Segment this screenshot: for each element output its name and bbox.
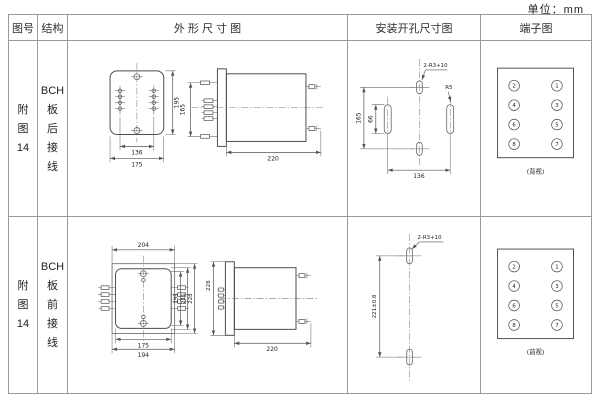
mounting-drawing-rear-wiring: 165 66 136 2-R3+10 R5 <box>348 41 480 216</box>
terminal-circles: 2 4 6 8 1 3 5 7 <box>508 80 562 149</box>
dim-label: 194 <box>138 352 150 359</box>
col-header-outline: 外 形 尺 寸 图 <box>68 15 348 41</box>
terminal-number: 4 <box>512 103 516 109</box>
structure-line: 板 <box>47 280 58 292</box>
dim-label: 220 <box>266 346 278 353</box>
structure-line: 板 <box>47 104 58 116</box>
terminal-number: 6 <box>512 303 516 309</box>
structure-line: 前 <box>47 299 58 311</box>
col-header-structure: 结构 <box>38 15 68 41</box>
row1-mounting-cell: 165 66 136 2-R3+10 R5 <box>348 41 481 217</box>
structure-line: 线 <box>47 161 58 173</box>
dim-label: 228 <box>188 292 194 303</box>
structure-line: 接 <box>47 318 58 330</box>
terminal-diagram-front-view: 2 4 6 8 1 3 5 7 (前视) <box>482 218 591 393</box>
figure-no-line: 14 <box>17 142 29 154</box>
row1-terminal-cell: 2 4 6 8 1 3 5 7 (背视) <box>481 41 591 217</box>
dim-label: 221±0.8 <box>372 294 378 318</box>
hole-spec-label: 2-R3+10 <box>417 235 442 241</box>
terminal-number: 7 <box>555 322 558 328</box>
dim-label: 136 <box>413 173 425 180</box>
col-header-mounting: 安装开孔尺寸图 <box>348 15 481 41</box>
outline-drawing-rear-wiring: 136 175 195 165 <box>68 41 347 216</box>
dim-label: 204 <box>138 241 150 248</box>
row2-mounting-cell: 2-R3+10 221±0.8 <box>348 217 481 393</box>
terminal-column-left <box>115 86 125 115</box>
side-view: 228 220 <box>206 261 317 352</box>
terminal-number: 6 <box>512 123 516 129</box>
dim-label: 220 <box>267 155 279 162</box>
terminal-span-dim: 165 <box>180 83 198 137</box>
dim-label: 195 <box>174 293 180 303</box>
dim-label: 136 <box>131 149 143 156</box>
hole-spec-label: 2-R3+10 <box>423 63 448 69</box>
row1-outline-cell: 136 175 195 165 <box>68 41 348 217</box>
row2-structure: BCH 板 前 接 线 <box>38 217 68 393</box>
structure-line: BCH <box>41 261 64 273</box>
figure-no-line: 14 <box>17 318 29 330</box>
terminal-screws-left <box>98 285 115 309</box>
view-caption: (前视) <box>526 347 544 356</box>
terminal-number: 5 <box>555 123 558 129</box>
terminal-number: 1 <box>555 264 558 270</box>
row2-figure-no: 附 图 14 <box>9 217 38 393</box>
dim-label: 175 <box>131 161 143 168</box>
rear-terminal-studs <box>198 81 218 138</box>
front-view: 136 175 195 <box>110 63 181 168</box>
figure-no-line: 图 <box>18 299 29 311</box>
dim-label: 165 <box>180 104 187 116</box>
terminal-number: 8 <box>512 322 516 328</box>
terminal-number: 8 <box>512 142 516 148</box>
dim-label: 228 <box>206 279 212 290</box>
terminal-number: 7 <box>555 142 558 148</box>
terminal-number: 5 <box>555 303 558 309</box>
view-caption: (背视) <box>526 166 544 175</box>
structure-line: BCH <box>41 85 64 97</box>
dim-label: 211 <box>181 293 187 303</box>
dim-label: 66 <box>367 115 374 123</box>
outline-drawing-front-wiring: 204 195 211 228 175 194 <box>68 218 347 393</box>
side-view: 220 <box>192 69 325 162</box>
terminal-column-right <box>149 86 159 115</box>
dim-label: 175 <box>138 342 150 349</box>
mounting-drawing-front-wiring: 2-R3+10 221±0.8 <box>348 218 480 393</box>
structure-line: 线 <box>47 337 58 349</box>
front-view: 204 195 211 228 175 194 <box>98 241 197 358</box>
terminal-circles: 2 4 6 8 1 3 5 7 <box>508 261 562 330</box>
terminal-number: 3 <box>555 103 558 109</box>
dimension-sheet-table: 图号 结构 外 形 尺 寸 图 安装开孔尺寸图 端子图 附 图 14 BCH 板… <box>8 14 592 394</box>
structure-line: 后 <box>47 123 58 135</box>
radius-label: R5 <box>445 85 452 91</box>
figure-no-line: 附 <box>18 280 29 292</box>
col-header-terminal: 端子图 <box>481 15 591 41</box>
row2-outline-cell: 204 195 211 228 175 194 <box>68 217 348 393</box>
figure-no-line: 图 <box>18 123 29 135</box>
mounting-slots <box>384 97 453 142</box>
structure-line: 接 <box>47 142 58 154</box>
terminal-number: 2 <box>512 264 515 270</box>
terminal-diagram-rear-view: 2 4 6 8 1 3 5 7 (背视) <box>482 41 591 216</box>
terminal-number: 1 <box>555 84 558 90</box>
terminal-number: 2 <box>512 84 515 90</box>
dim-label: 165 <box>355 112 362 124</box>
row2-terminal-cell: 2 4 6 8 1 3 5 7 (前视) <box>481 217 591 393</box>
row1-figure-no: 附 图 14 <box>9 41 38 217</box>
row1-structure: BCH 板 后 接 线 <box>38 41 68 217</box>
terminal-number: 3 <box>555 283 558 289</box>
col-header-figure-no: 图号 <box>9 15 38 41</box>
figure-no-line: 附 <box>18 104 29 116</box>
terminal-number: 4 <box>512 283 516 289</box>
